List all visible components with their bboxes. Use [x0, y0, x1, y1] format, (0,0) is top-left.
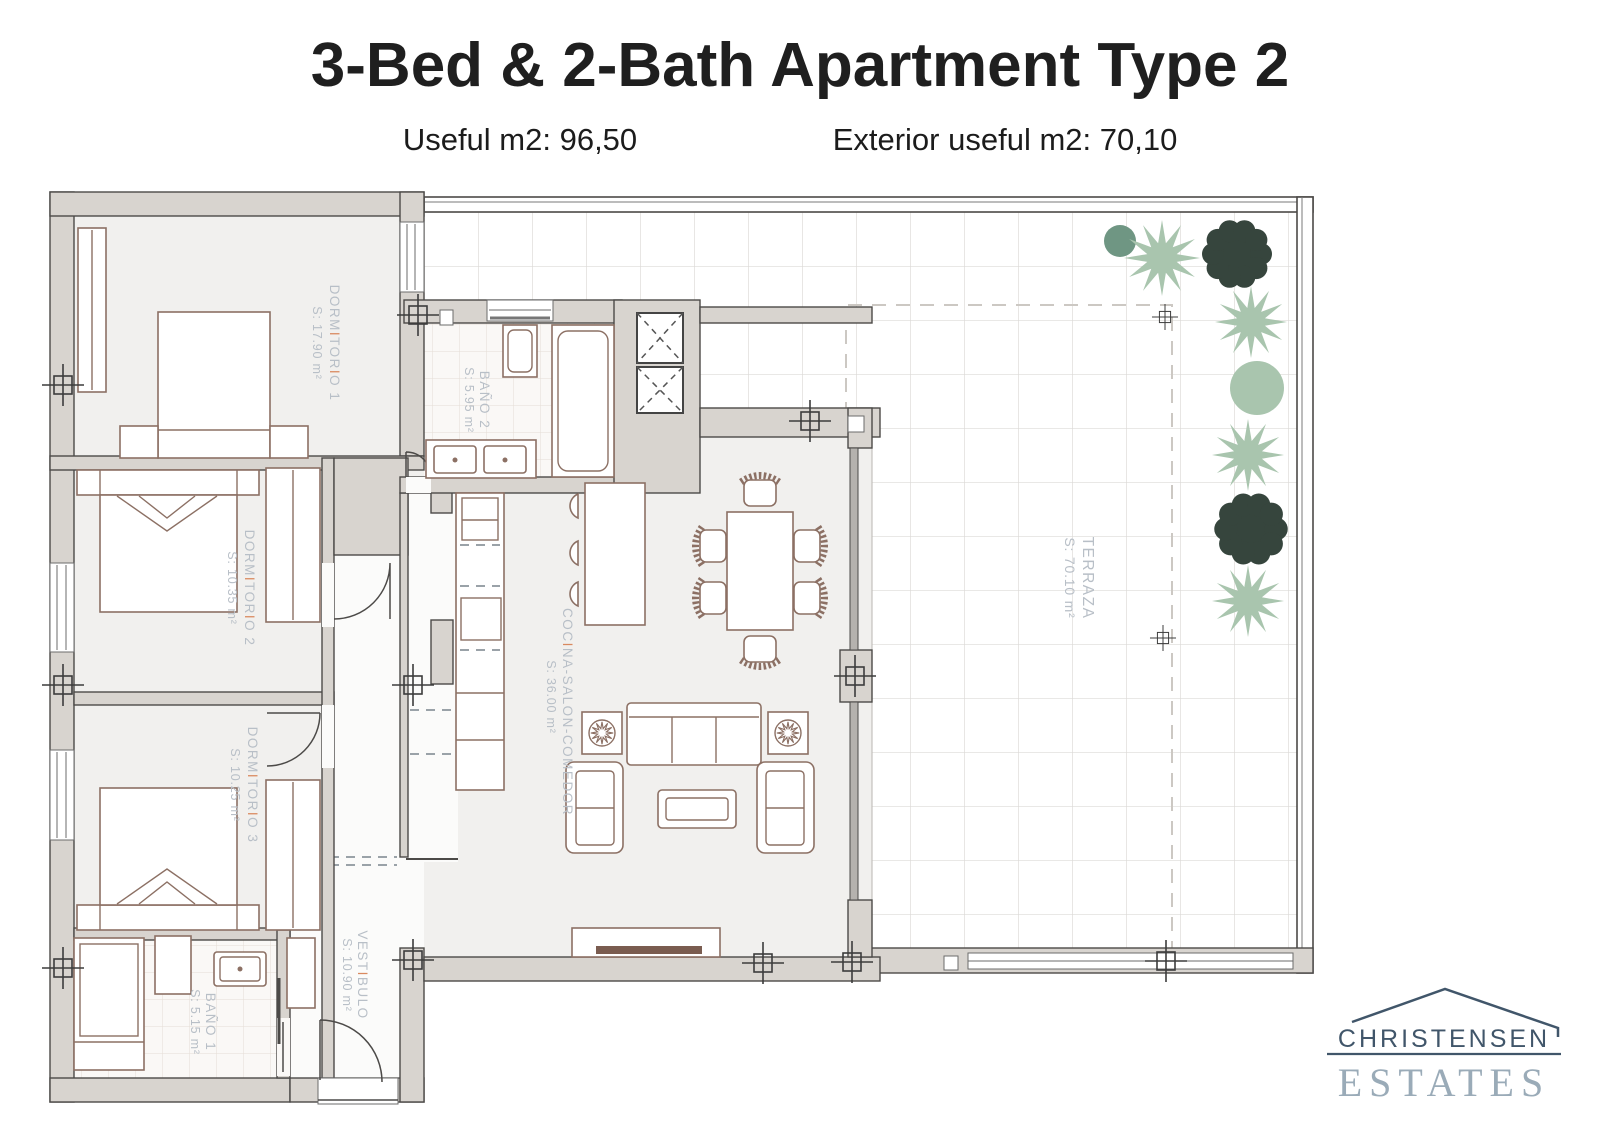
- floorplan-drawing: DORMITORIO 1 S: 17.90 m² DORMITORIO 2 S:…: [0, 0, 1600, 1131]
- armchair: [757, 762, 814, 853]
- sofa: [627, 703, 761, 765]
- room-area-cocina: S: 36.00 m²: [544, 660, 558, 733]
- shower: [74, 938, 144, 1070]
- dormitorio-2-furniture: [77, 468, 320, 622]
- coffee-table: [658, 790, 736, 828]
- christensen-estates-logo: CHRISTENSEN ESTATES: [1327, 989, 1561, 1105]
- terrace-top-parapet: [424, 197, 1313, 212]
- chair: [741, 476, 779, 507]
- room-area-bano-1: S: 5.15 m²: [188, 989, 202, 1055]
- room-area-vestibulo: S: 10.90 m²: [340, 938, 354, 1011]
- room-area-dormitorio-1: S: 17.90 m²: [310, 306, 324, 379]
- floorplan-page: 3-Bed & 2-Bath Apartment Type 2 Useful m…: [0, 0, 1600, 1131]
- chair: [794, 527, 825, 565]
- window: [50, 750, 74, 840]
- room-label-bano-1: BAÑO 1: [203, 993, 218, 1052]
- nightstand: [120, 426, 158, 458]
- chair: [741, 636, 779, 667]
- side-table: [582, 712, 622, 754]
- headboard: [77, 905, 259, 930]
- room-label-bano-2: BAÑO 2: [477, 371, 492, 430]
- logo-estates: ESTATES: [1338, 1060, 1550, 1105]
- chair: [794, 579, 825, 617]
- room-area-terraza: S: 70.10 m²: [1062, 537, 1078, 618]
- bathtub: [552, 325, 614, 477]
- side-table: [768, 712, 808, 754]
- tv: [596, 946, 702, 954]
- exterior-top-wall: [50, 192, 424, 216]
- room-label-terraza: TERRAZA: [1079, 537, 1096, 620]
- hall-cabinet: [287, 938, 315, 1008]
- room-label-vestibulo: VESTIBULO: [355, 930, 370, 1019]
- room-label-cocina: COCINA-SALON-COMEDOR: [560, 608, 575, 816]
- logo-christensen: CHRISTENSEN: [1338, 1025, 1550, 1053]
- vent-icon: [944, 956, 958, 970]
- room-area-dormitorio-3: S: 10.25 m²: [228, 748, 242, 821]
- bathroom-cabinet: [155, 936, 191, 994]
- bed: [158, 312, 270, 458]
- room-label-dormitorio-2: DORMITORIO 2: [242, 530, 257, 647]
- bed: [100, 495, 237, 612]
- terrace-right-parapet: [1297, 197, 1313, 973]
- chair: [696, 579, 727, 617]
- plant-circle-icon: [1104, 225, 1136, 257]
- room-label-dormitorio-1: DORMITORIO 1: [327, 285, 342, 402]
- kitchen-counter: [456, 493, 504, 790]
- sliding-glass-door: [850, 702, 858, 900]
- headboard: [77, 470, 259, 495]
- room-label-dormitorio-3: DORMITORIO 3: [245, 727, 260, 844]
- window: [50, 563, 74, 652]
- bed: [100, 788, 237, 905]
- shaft-icon: [637, 313, 683, 413]
- sliding-glass-door: [850, 448, 858, 650]
- plant-circle-icon: [1230, 361, 1284, 415]
- kitchen-island: [585, 483, 645, 625]
- room-area-dormitorio-2: S: 10.35 m²: [225, 551, 239, 624]
- vent-icon: [848, 416, 864, 432]
- plant-bush-icon: [1214, 494, 1288, 565]
- plant-bush-icon: [1202, 220, 1272, 288]
- window: [487, 300, 553, 321]
- chair: [696, 527, 727, 565]
- dining-table: [727, 512, 793, 630]
- room-area-bano-2: S: 5.95 m²: [462, 367, 476, 433]
- terrace-door-window: [400, 222, 424, 292]
- vent-icon: [440, 310, 453, 325]
- nightstand: [270, 426, 308, 458]
